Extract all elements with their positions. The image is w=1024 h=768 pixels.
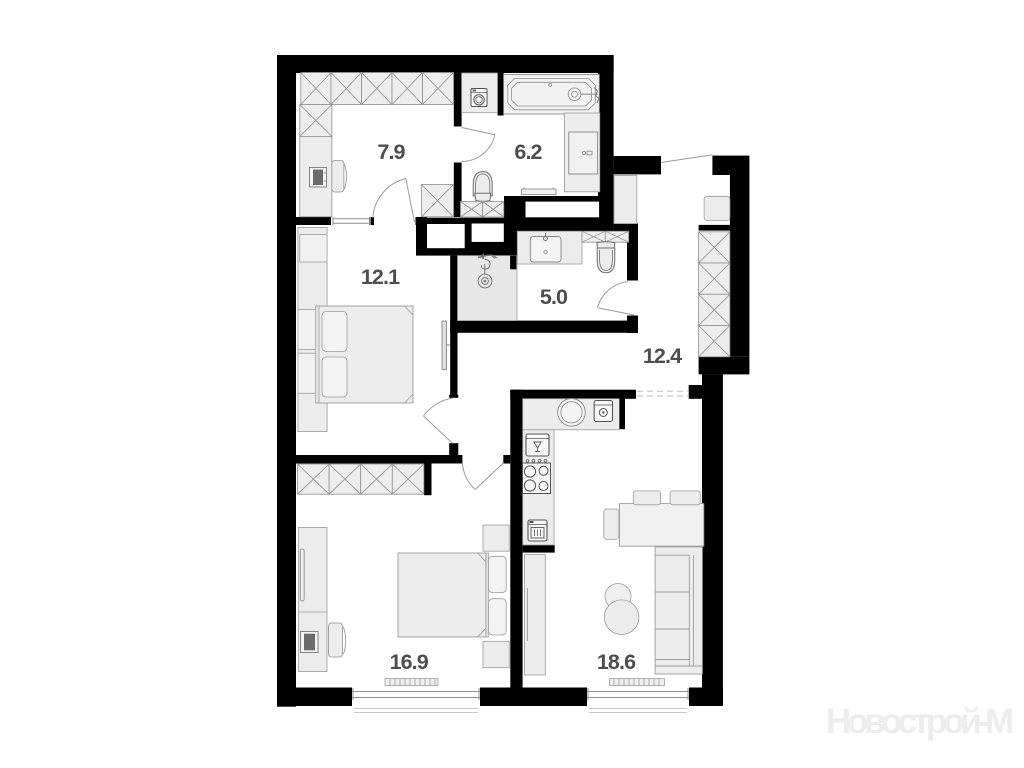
svg-text:6.2: 6.2 xyxy=(514,140,542,164)
svg-text:16.9: 16.9 xyxy=(390,650,429,674)
svg-text:Новострой-М: Новострой-М xyxy=(826,702,1012,741)
svg-text:5.0: 5.0 xyxy=(540,285,568,309)
svg-text:7.9: 7.9 xyxy=(377,140,405,164)
svg-text:12.1: 12.1 xyxy=(361,265,400,289)
svg-text:12.4: 12.4 xyxy=(643,344,682,368)
svg-text:18.6: 18.6 xyxy=(597,650,636,674)
